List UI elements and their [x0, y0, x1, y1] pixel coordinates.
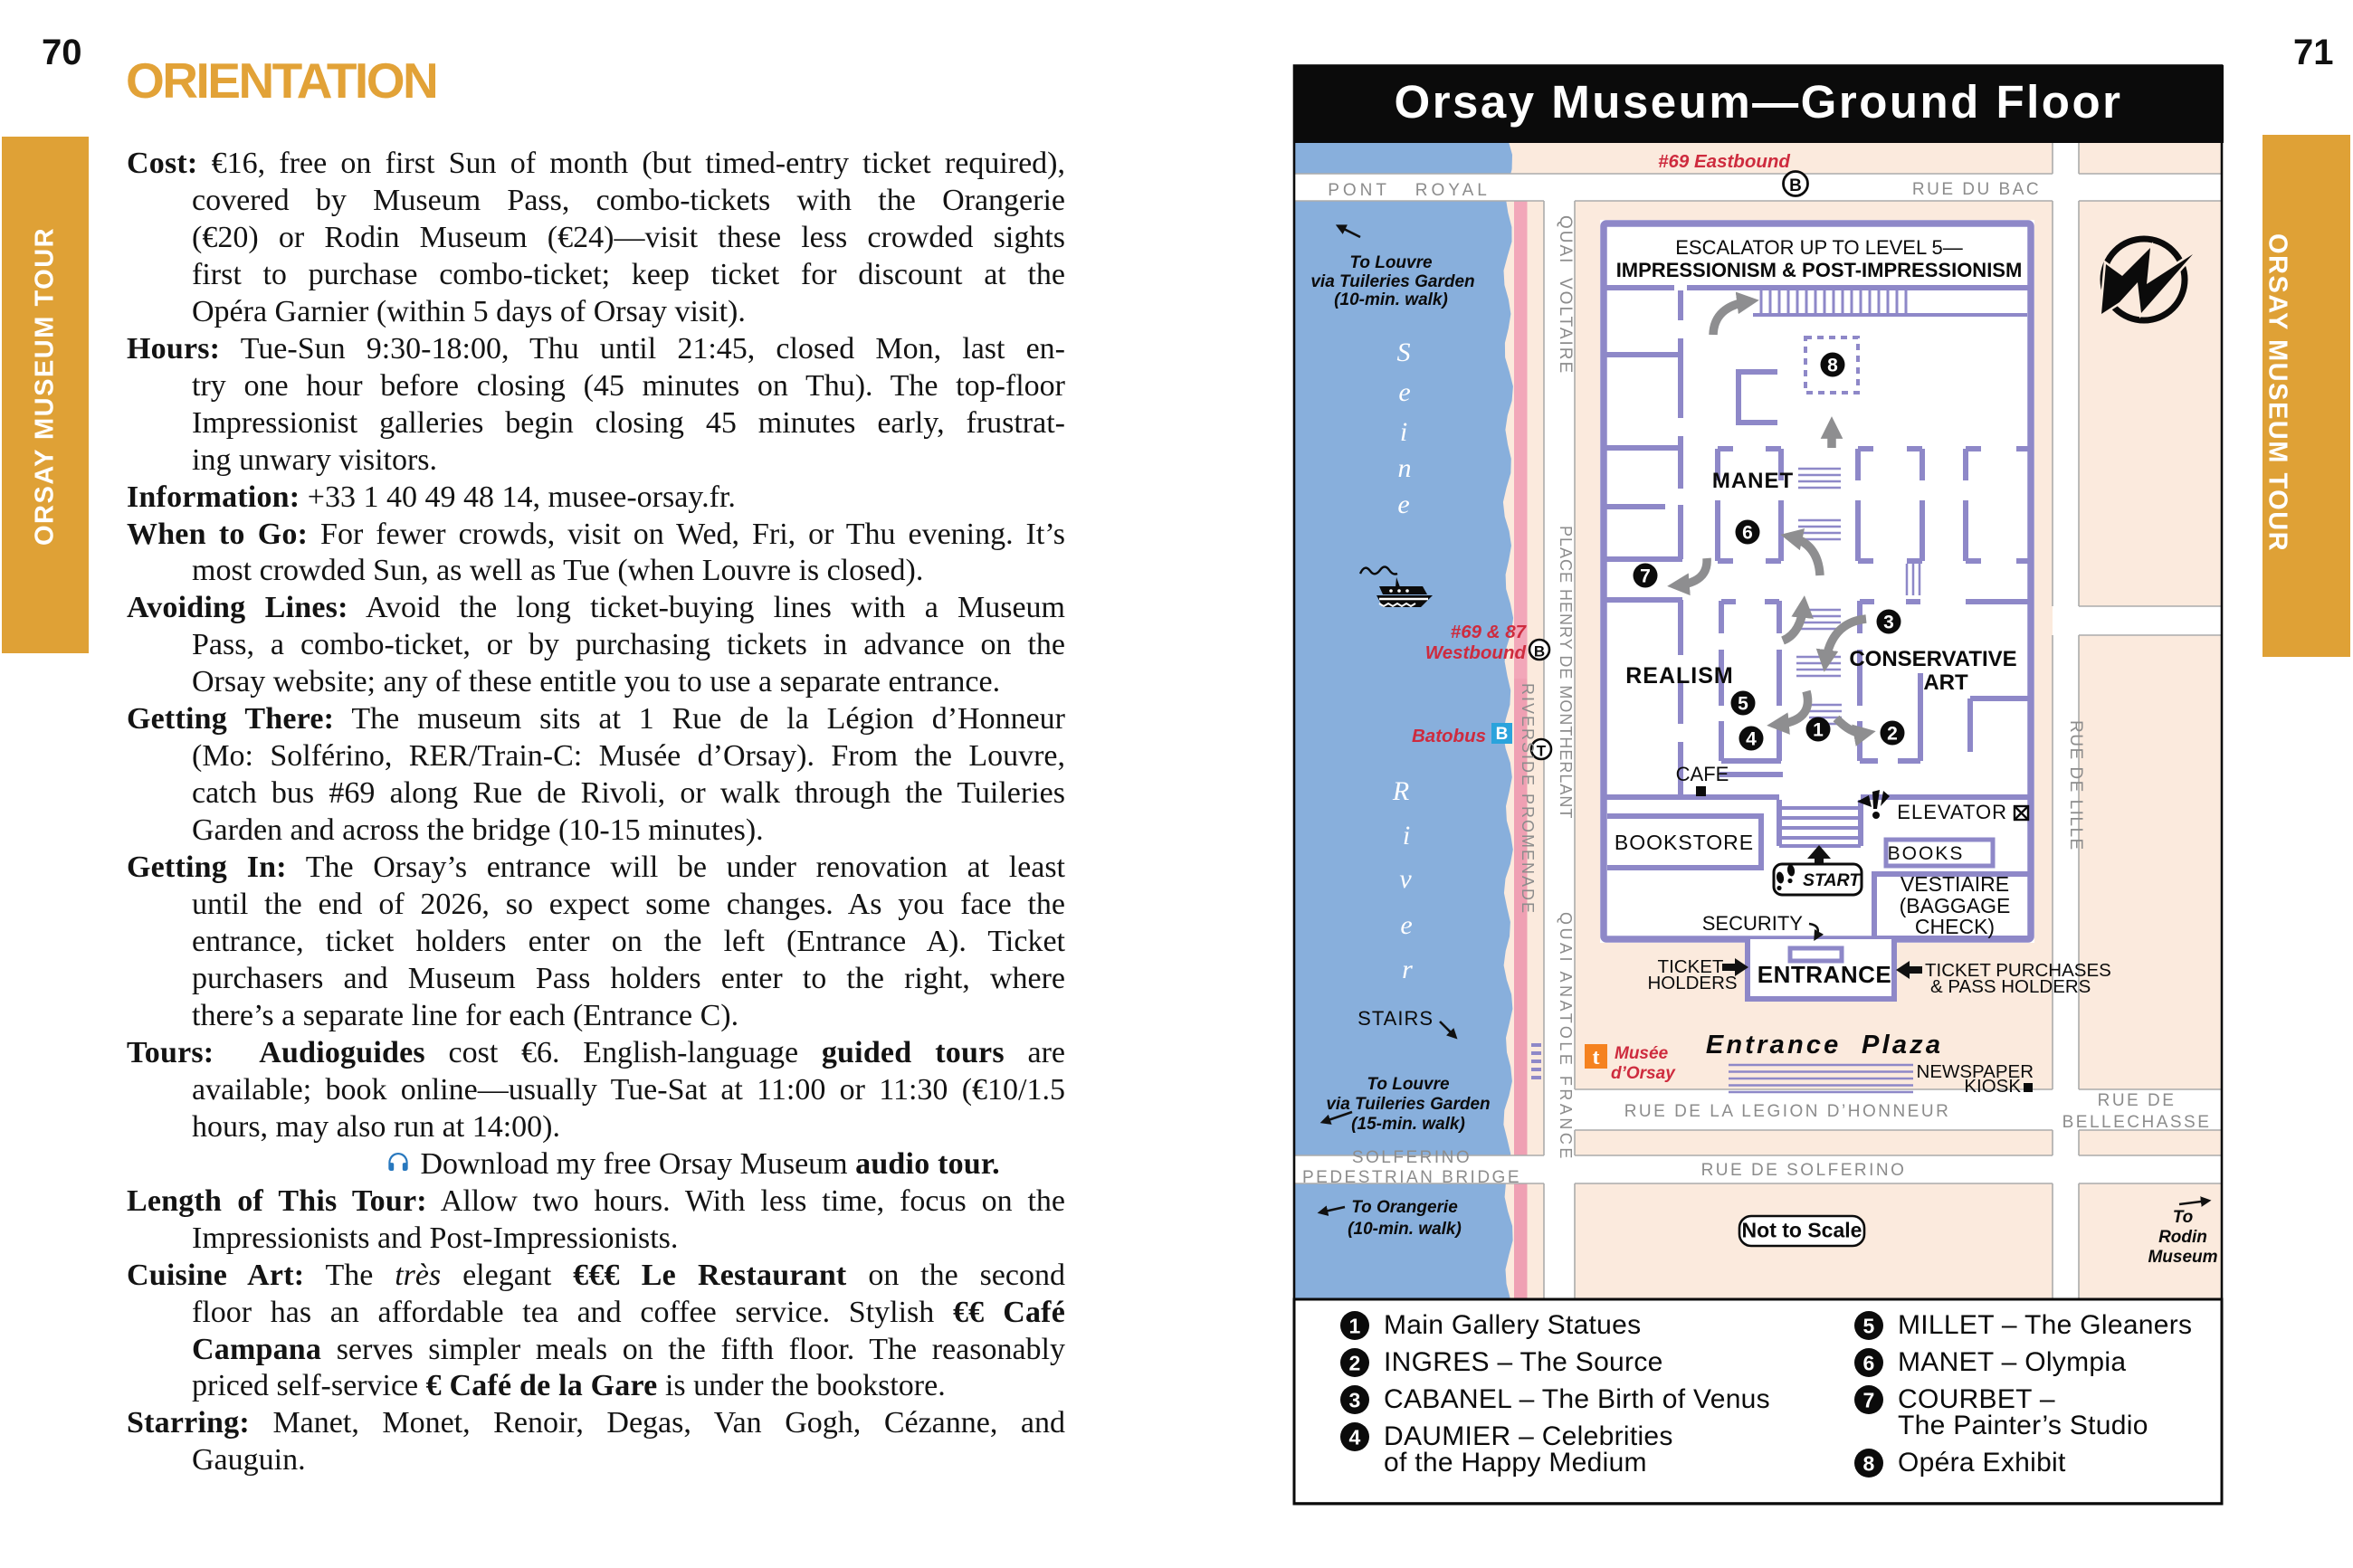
svg-text:SECURITY: SECURITY	[1702, 912, 1804, 935]
svg-text:ELEVATOR: ELEVATOR	[1897, 801, 2007, 823]
svg-text:i: i	[1403, 821, 1410, 851]
svg-text:MANET: MANET	[1712, 469, 1794, 493]
svg-text:e: e	[1398, 377, 1410, 407]
svg-text:4: 4	[1746, 729, 1757, 750]
svg-text:e: e	[1400, 910, 1412, 940]
svg-text:5: 5	[1862, 1315, 1874, 1338]
svg-text:2: 2	[1348, 1352, 1360, 1375]
svg-text:PLACE HENRY DE MONTHERLANT: PLACE HENRY DE MONTHERLANT	[1557, 526, 1575, 819]
svg-text:S: S	[1397, 337, 1411, 367]
svg-text:ENTRANCE: ENTRANCE	[1758, 961, 1891, 988]
svg-text:QUAI ANATOLE FRANCE: QUAI ANATOLE FRANCE	[1557, 912, 1575, 1162]
svg-text:R: R	[1392, 776, 1409, 806]
svg-text:MILLET – The Gleaners: MILLET – The Gleaners	[1898, 1310, 2192, 1340]
svg-text:via Tuileries Garden: via Tuileries Garden	[1326, 1095, 1490, 1114]
svg-text:REALISM: REALISM	[1625, 663, 1734, 689]
svg-text:PEDESTRIAN BRIDGE: PEDESTRIAN BRIDGE	[1302, 1168, 1521, 1187]
svg-text:(10-min. walk): (10-min. walk)	[1334, 290, 1448, 309]
svg-text:KIOSK: KIOSK	[1964, 1076, 2021, 1097]
svg-text:3: 3	[1883, 613, 1894, 633]
svg-text:RUE DU BAC: RUE DU BAC	[1912, 180, 2041, 199]
svg-text:VESTIAIRE: VESTIAIRE	[1900, 872, 2009, 896]
svg-text:ESCALATOR UP TO LEVEL 5—: ESCALATOR UP TO LEVEL 5—	[1675, 236, 1963, 259]
svg-text:To Louvre: To Louvre	[1367, 1075, 1450, 1094]
svg-text:of the Happy Medium: of the Happy Medium	[1384, 1448, 1647, 1478]
svg-text:To Orangerie: To Orangerie	[1351, 1198, 1458, 1217]
svg-text:Musée: Musée	[1615, 1044, 1669, 1063]
svg-text:v: v	[1399, 864, 1412, 894]
svg-text:via Tuileries Garden: via Tuileries Garden	[1310, 272, 1474, 291]
svg-text:RIVERSIDE PROMENADE: RIVERSIDE PROMENADE	[1519, 683, 1537, 915]
svg-text:QUAI VOLTAIRE: QUAI VOLTAIRE	[1556, 215, 1575, 375]
svg-text:BOOKS: BOOKS	[1888, 843, 1965, 864]
svg-text:6: 6	[1742, 523, 1753, 544]
svg-text:Westbound: Westbound	[1425, 642, 1527, 663]
svg-text:8: 8	[1862, 1452, 1874, 1476]
svg-text:Opéra Exhibit: Opéra Exhibit	[1898, 1448, 2066, 1478]
svg-text:4: 4	[1348, 1426, 1360, 1449]
svg-text:7: 7	[1640, 566, 1651, 587]
svg-text:B: B	[1496, 725, 1509, 744]
svg-text:IMPRESSIONISM & POST-IMPRESSIO: IMPRESSIONISM & POST-IMPRESSIONISM	[1616, 259, 2023, 281]
svg-text:ART: ART	[1923, 670, 1968, 695]
svg-text:e: e	[1397, 489, 1409, 519]
svg-text:(15-min. walk): (15-min. walk)	[1351, 1115, 1465, 1134]
svg-text:PONT ROYAL: PONT ROYAL	[1328, 181, 1491, 200]
svg-text:RUE DE LILLE: RUE DE LILLE	[2066, 720, 2085, 851]
svg-text:Entrance Plaza: Entrance Plaza	[1706, 1031, 1943, 1060]
svg-text:3: 3	[1348, 1389, 1360, 1412]
svg-text:CAFE: CAFE	[1676, 763, 1729, 785]
svg-text:Rodin: Rodin	[2158, 1228, 2207, 1247]
svg-text:START: START	[1803, 870, 1862, 890]
svg-text:RUE DE SOLFERINO: RUE DE SOLFERINO	[1701, 1161, 1907, 1180]
svg-text:6: 6	[1862, 1352, 1874, 1375]
svg-text:& PASS HOLDERS: & PASS HOLDERS	[1930, 976, 2091, 997]
svg-text:8: 8	[1827, 356, 1838, 376]
svg-text:T: T	[1537, 743, 1547, 760]
svg-text:INGRES – The Source: INGRES – The Source	[1384, 1347, 1663, 1377]
svg-text:CABANEL – The Birth of Venus: CABANEL – The Birth of Venus	[1384, 1384, 1770, 1414]
svg-text:7: 7	[1862, 1389, 1874, 1412]
svg-text:#69 Eastbound: #69 Eastbound	[1658, 151, 1790, 172]
svg-text:BOOKSTORE: BOOKSTORE	[1615, 831, 1754, 854]
svg-text:Batobus: Batobus	[1412, 726, 1486, 746]
svg-text:BELLECHASSE: BELLECHASSE	[2062, 1113, 2212, 1132]
svg-text:t: t	[1593, 1046, 1600, 1069]
svg-text:d’Orsay: d’Orsay	[1611, 1064, 1676, 1083]
svg-text:The Painter’s Studio: The Painter’s Studio	[1898, 1411, 2148, 1440]
svg-text:CHECK): CHECK)	[1915, 915, 1995, 938]
svg-text:5: 5	[1738, 694, 1748, 715]
svg-text:RUE DE: RUE DE	[2098, 1091, 2177, 1110]
svg-text:HOLDERS: HOLDERS	[1647, 973, 1737, 993]
svg-text:Not to Scale: Not to Scale	[1742, 1219, 1862, 1242]
svg-text:1: 1	[1348, 1315, 1360, 1338]
svg-text:1: 1	[1813, 720, 1824, 741]
svg-text:Main Gallery Statues: Main Gallery Statues	[1384, 1310, 1641, 1340]
svg-text:B: B	[1534, 643, 1545, 660]
svg-text:STAIRS: STAIRS	[1357, 1007, 1434, 1030]
svg-text:To Louvre: To Louvre	[1349, 253, 1433, 272]
svg-text:MANET – Olympia: MANET – Olympia	[1898, 1347, 2126, 1377]
svg-text:i: i	[1400, 417, 1407, 447]
svg-text:n: n	[1398, 453, 1412, 483]
svg-text:SOLFERINO: SOLFERINO	[1352, 1148, 1472, 1167]
svg-text:(10-min. walk): (10-min. walk)	[1348, 1220, 1462, 1239]
svg-text:2: 2	[1887, 724, 1898, 745]
svg-text:Museum: Museum	[2148, 1248, 2217, 1267]
svg-text:To: To	[2173, 1208, 2194, 1227]
svg-text:CONSERVATIVE: CONSERVATIVE	[1849, 647, 2016, 671]
svg-text:RUE DE LA LEGION D’HONNEUR: RUE DE LA LEGION D’HONNEUR	[1624, 1102, 1951, 1121]
svg-text:Orsay Museum—Ground Floor: Orsay Museum—Ground Floor	[1395, 76, 2123, 128]
svg-text:#69 & 87: #69 & 87	[1451, 622, 1528, 642]
svg-text:B: B	[1789, 176, 1802, 195]
svg-text:r: r	[1402, 955, 1413, 984]
